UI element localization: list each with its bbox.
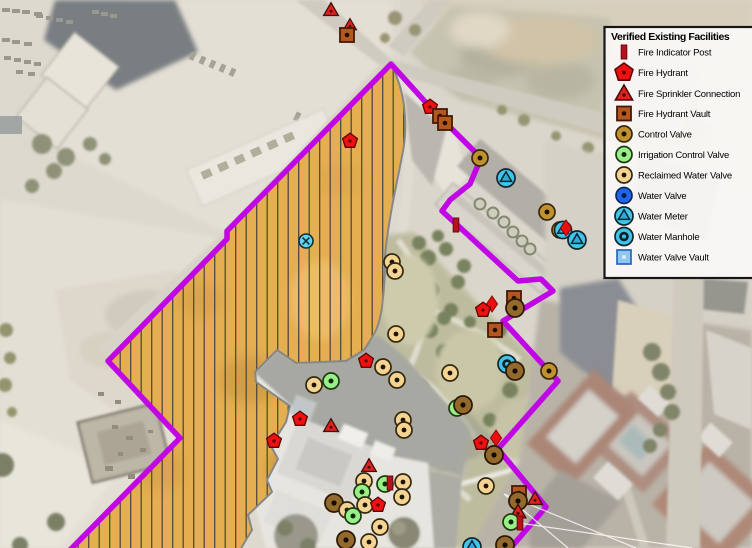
svg-text:Control Valve: Control Valve — [638, 130, 692, 141]
svg-text:Verified Existing Facilities: Verified Existing Facilities — [611, 31, 730, 43]
svg-text:Irrigation Control Valve: Irrigation Control Valve — [638, 150, 729, 161]
svg-text:Fire Hydrant: Fire Hydrant — [638, 68, 688, 79]
svg-text:Fire Indicator Post: Fire Indicator Post — [638, 48, 712, 59]
svg-text:Water Valve Vault: Water Valve Vault — [638, 253, 709, 264]
svg-text:Water Valve: Water Valve — [638, 191, 686, 202]
svg-text:Reclaimed Water Valve: Reclaimed Water Valve — [638, 171, 732, 182]
svg-text:Water Manhole: Water Manhole — [638, 232, 699, 243]
svg-text:Fire Hydrant Vault: Fire Hydrant Vault — [638, 109, 711, 120]
svg-text:Water Meter: Water Meter — [638, 212, 688, 223]
svg-text:Fire Sprinkler Connection: Fire Sprinkler Connection — [638, 89, 740, 100]
